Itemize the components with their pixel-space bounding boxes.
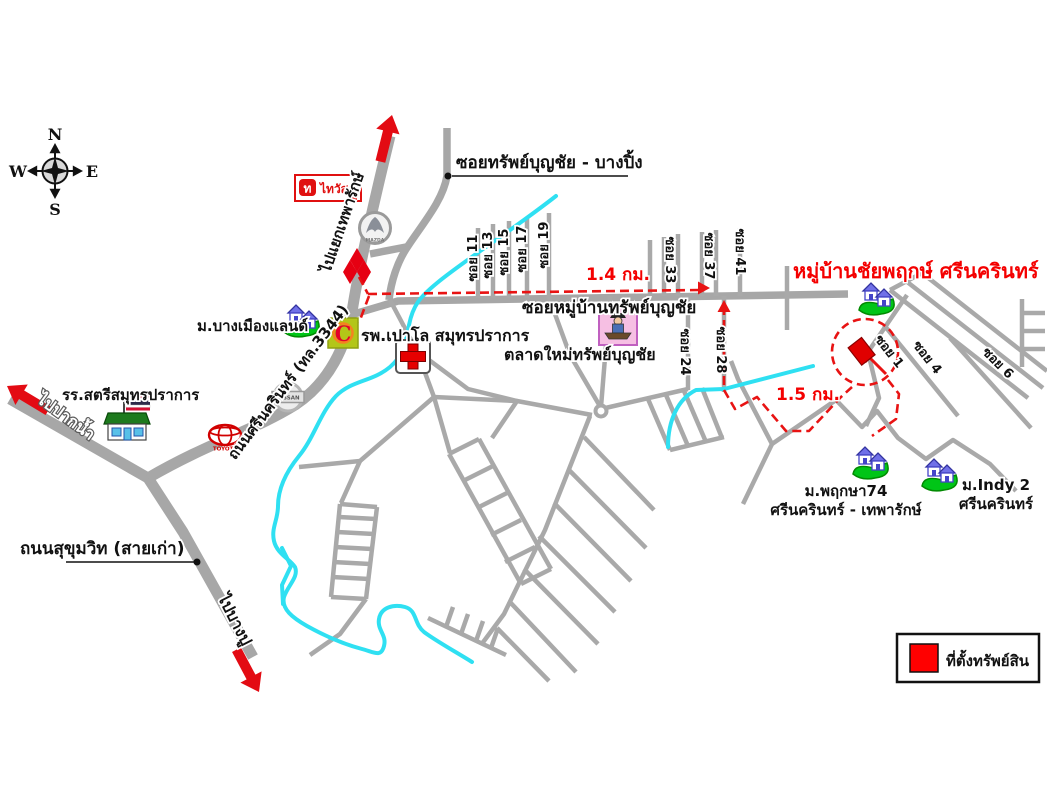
map-line (461, 614, 468, 634)
compass-east: E (86, 162, 98, 181)
map-line (333, 562, 370, 564)
map-line (890, 290, 1028, 398)
mazda-logo-text: MAZDA (366, 238, 385, 244)
map-line (341, 461, 360, 503)
label-pruksa74-line1: ม.พฤกษา74 (805, 482, 888, 500)
compass-west: W (8, 162, 28, 181)
map-line (339, 517, 376, 519)
map-line (492, 401, 517, 438)
map-line (340, 504, 377, 507)
map-line (389, 128, 447, 300)
label-sukhumvit: ถนนสุขุมวิท (สายเก่า) (20, 539, 184, 559)
label-soi-28: ซอย 28 (713, 327, 728, 374)
label-soi-24: ซอย 24 (677, 329, 692, 376)
label-soi-37: ซอย 37 (701, 233, 716, 280)
map-line (491, 520, 521, 535)
compass-rose: N S W E (8, 125, 98, 219)
legend-box: ที่ตั้งทรัพย์สิน (897, 634, 1039, 682)
map-line (337, 532, 374, 534)
label-soi-11: ซอย 11 (466, 235, 481, 282)
label-to-bangpu: ไปบางปู (211, 589, 256, 650)
mazda-logo-icon: MAZDA (360, 213, 391, 244)
label-school: รร.สตรีสมุทรปราการ (62, 386, 200, 405)
map-line (477, 493, 507, 508)
label-soi-13: ซอย 13 (481, 232, 496, 279)
label-soi-15: ซอย 15 (497, 229, 512, 276)
label-indy2-line1: ม.Indy 2 (962, 476, 1030, 494)
map-line (684, 391, 706, 442)
junction-dot-bangping (445, 173, 452, 180)
village-icon-indy2 (922, 459, 957, 491)
map-line (554, 503, 631, 581)
label-distance-1: 1.4 กม. (586, 265, 650, 285)
map-line (331, 597, 366, 599)
map-line (584, 437, 654, 510)
map-line (449, 439, 479, 454)
label-pruksa74-line2: ศรีนครินทร์ - เทพารักษ์ (770, 501, 922, 519)
map-line (524, 569, 598, 644)
label-soi-17: ซอย 17 (515, 226, 530, 273)
label-soi-mueban: ซอยหมู่บ้านทรัพย์บุญชัย (522, 297, 696, 319)
legend-label: ที่ตั้งทรัพย์สิน (946, 649, 1030, 670)
label-soi-bangping: ซอยทรัพย์บุญชัย - บางปิ้ง (456, 149, 643, 173)
village-icon-pruksa74 (853, 447, 888, 479)
label-indy2-line2: ศรีนครินทร์ (959, 495, 1034, 513)
map-title: หมู่บ้านชัยพฤกษ์ ศรีนครินทร์ (793, 259, 1039, 285)
thai-watsadu-logo-letter: ท (304, 182, 312, 196)
label-soi-33: ซอย 33 (662, 237, 677, 284)
map-line (335, 547, 372, 549)
legend-marker (910, 644, 938, 672)
label-distance-2: 1.5 กม. (776, 385, 840, 405)
label-soi-19: ซอย 19 (537, 222, 552, 269)
label-soi-4: ซอย 4 (909, 338, 944, 377)
roundabout (596, 406, 607, 417)
route-arrow-north (718, 300, 731, 312)
map-line (702, 388, 722, 438)
label-soi-41: ซอย 41 (732, 229, 747, 276)
map-line (476, 621, 483, 641)
compass-south: S (49, 200, 61, 219)
map-line (743, 444, 772, 504)
map-canvas: N S W E ท ไทวัสดุ MAZDA C NISSAN (0, 0, 1047, 800)
label-market: ตลาดใหม่ทรัพย์บุญชัย (504, 345, 656, 365)
map-line (670, 437, 724, 450)
map-line (434, 397, 450, 453)
map-line (601, 389, 688, 409)
map-line (299, 397, 434, 467)
map-line (446, 607, 453, 627)
compass-north: N (48, 125, 63, 144)
arrow-north-srinakarin (369, 112, 404, 164)
map-line (331, 504, 340, 597)
village-icon-chaipruek (859, 283, 894, 315)
junction-dot-sukhumvit (194, 559, 201, 566)
map-line (332, 577, 369, 579)
map-line (569, 470, 646, 548)
map-line (449, 454, 521, 584)
label-hospital: รพ.เปาโล สมุทรปราการ (361, 325, 530, 346)
map-line (463, 466, 493, 481)
map-line (539, 536, 615, 612)
label-bang-mueang-land: ม.บางเมืองแลนด์ (197, 317, 308, 335)
